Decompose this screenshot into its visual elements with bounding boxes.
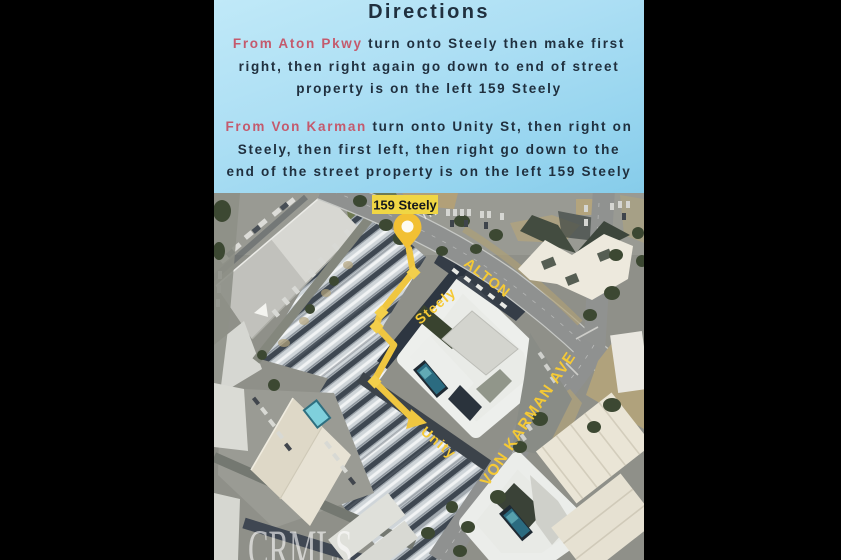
svg-text:CRMLS: CRMLS	[248, 519, 352, 560]
svg-text:159 Steely: 159 Steely	[373, 198, 437, 213]
